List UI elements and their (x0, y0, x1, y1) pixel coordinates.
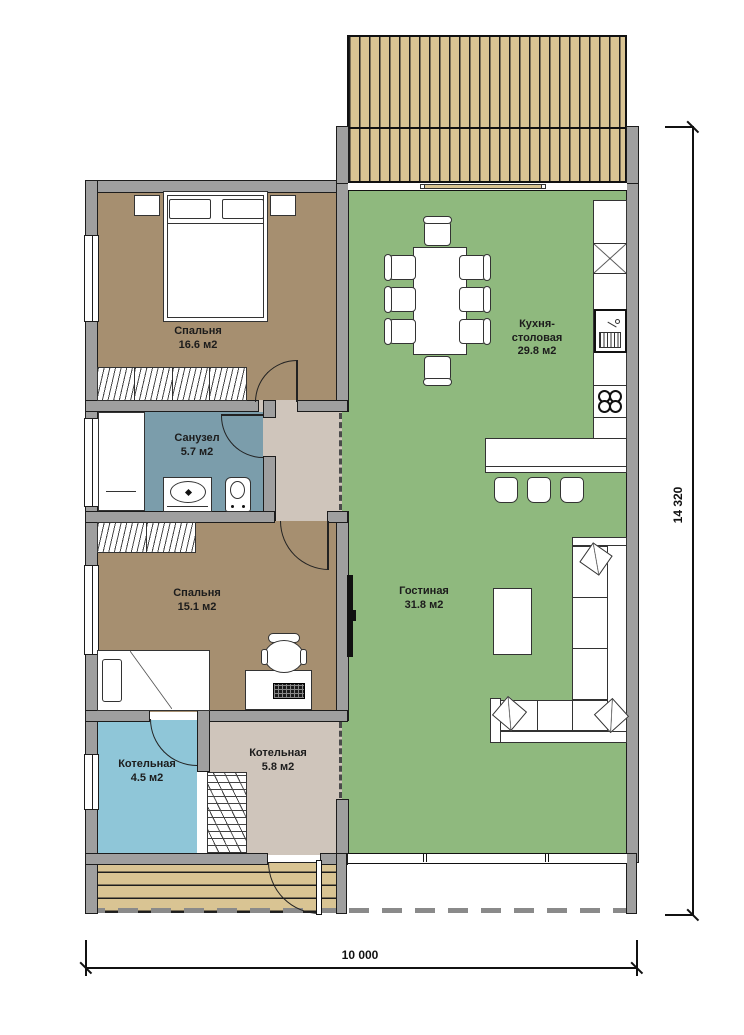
dim-line-vertical (692, 127, 694, 915)
window-mullion (545, 854, 549, 862)
wall-bottom-a (85, 853, 268, 865)
wall-bedroom2-bottom-a (85, 710, 150, 722)
sliding-door-terrace (348, 182, 627, 191)
wall-boiler-divider (197, 710, 210, 772)
label-bedroom2: Спальня 15.1 м2 (173, 587, 221, 614)
window-wall-living-bottom (348, 853, 627, 864)
label-boiler-large: Котельная 5.8 м2 (249, 747, 307, 774)
terrace-column-right (626, 126, 639, 184)
room-name: Кухня- (512, 318, 563, 332)
wall-right (626, 180, 639, 863)
wall-left-1 (85, 180, 98, 237)
wall-bath-right-a (263, 400, 276, 418)
dining-chair (389, 319, 416, 344)
dim-tick-bottom (665, 914, 694, 916)
door-leaf-bedroom2 (327, 521, 329, 570)
room-name: столовая (512, 332, 563, 346)
sofa-front-band (490, 731, 627, 743)
room-area: 5.7 м2 (174, 446, 219, 460)
porch-post-left (336, 853, 347, 914)
dim-line-horizontal (85, 967, 638, 969)
terrace-column-left (336, 126, 349, 184)
room-name: Гостиная (399, 585, 449, 599)
bathroom-cabinet (98, 412, 145, 511)
dining-chair (459, 287, 486, 312)
room-name: Спальня (174, 325, 222, 339)
sliding-door-handle-right (541, 184, 546, 189)
door-leaf-bedroom1 (296, 360, 298, 402)
dining-chair (389, 287, 416, 312)
dining-chair (459, 255, 486, 280)
sink-vanity (163, 477, 212, 512)
stove (593, 385, 627, 418)
wall-bath-bottom-b (327, 511, 348, 523)
wall-bedroom2-bottom-b (197, 710, 348, 722)
roof-overhang-dashed-line (85, 908, 638, 913)
terrace-deck (347, 35, 627, 183)
room-name: Санузел (174, 432, 219, 446)
shelf-unit (207, 772, 247, 853)
porch-post-right (626, 853, 637, 914)
door-leaf-entry (316, 860, 322, 915)
window-bedroom1 (84, 235, 99, 322)
room-area: 5.8 м2 (249, 761, 307, 775)
pillow-left (169, 199, 211, 219)
wall-central-3 (336, 799, 349, 855)
coffee-table (493, 588, 532, 655)
bar-stool (560, 477, 584, 503)
label-bedroom1: Спальня 16.6 м2 (174, 325, 222, 352)
tall-cabinet (593, 243, 627, 274)
room-name: Котельная (249, 747, 307, 761)
dining-chair (459, 319, 486, 344)
keyboard (273, 683, 305, 699)
pillow (102, 659, 122, 702)
room-name: Спальня (173, 587, 221, 601)
wall-bedroom1-bottom-b (297, 400, 348, 412)
dim-tick-top (665, 126, 694, 128)
double-bed (163, 191, 268, 322)
window-boiler (84, 754, 99, 810)
dining-chair (389, 255, 416, 280)
room-name: Котельная (118, 758, 176, 772)
tv-mount (352, 610, 356, 621)
room-area: 4.5 м2 (118, 772, 176, 786)
sliding-door-panel (423, 184, 545, 189)
door-leaf-bathroom (221, 414, 263, 416)
wardrobe-bedroom2 (97, 522, 196, 553)
desk-chair-seat (264, 640, 304, 673)
pillow-right (222, 199, 264, 219)
dim-value-horizontal: 10 000 (342, 948, 379, 962)
bar-stool (494, 477, 518, 503)
floor-plan: Спальня 16.6 м2 Санузел 5.7 м2 Спальня 1… (0, 0, 744, 1035)
opening-boiler-living (339, 722, 342, 798)
dining-chair (424, 221, 451, 246)
label-kitchen: Кухня- столовая 29.8 м2 (512, 318, 563, 359)
single-bed (97, 650, 210, 711)
room-area: 15.1 м2 (173, 601, 221, 615)
dim-value-vertical: 14 320 (671, 487, 685, 524)
toilet (225, 477, 251, 512)
room-area: 31.8 м2 (399, 599, 449, 613)
dim-ext-left (85, 940, 87, 976)
label-boiler-small: Котельная 4.5 м2 (118, 758, 176, 785)
wall-bedroom1-bottom-a (85, 400, 259, 412)
window-bathroom (84, 418, 99, 507)
nightstand-right (270, 195, 296, 216)
sliding-door-handle-left (420, 184, 425, 189)
desk (245, 670, 312, 710)
dining-chair (424, 356, 451, 381)
wall-central-1 (336, 180, 349, 412)
kitchen-island (485, 438, 627, 473)
window-bedroom2 (84, 565, 99, 655)
wardrobe-bedroom1 (97, 367, 247, 401)
dim-ext-right (636, 940, 638, 976)
label-living: Гостиная 31.8 м2 (399, 585, 449, 612)
opening-hall-living (339, 413, 342, 510)
window-mullion (423, 854, 427, 862)
room-area: 29.8 м2 (512, 345, 563, 359)
label-bathroom: Санузел 5.7 м2 (174, 432, 219, 459)
terrace-seam (349, 127, 625, 129)
room-area: 16.6 м2 (174, 339, 222, 353)
nightstand-left (134, 195, 160, 216)
kitchen-sink (594, 309, 627, 353)
bar-stool (527, 477, 551, 503)
